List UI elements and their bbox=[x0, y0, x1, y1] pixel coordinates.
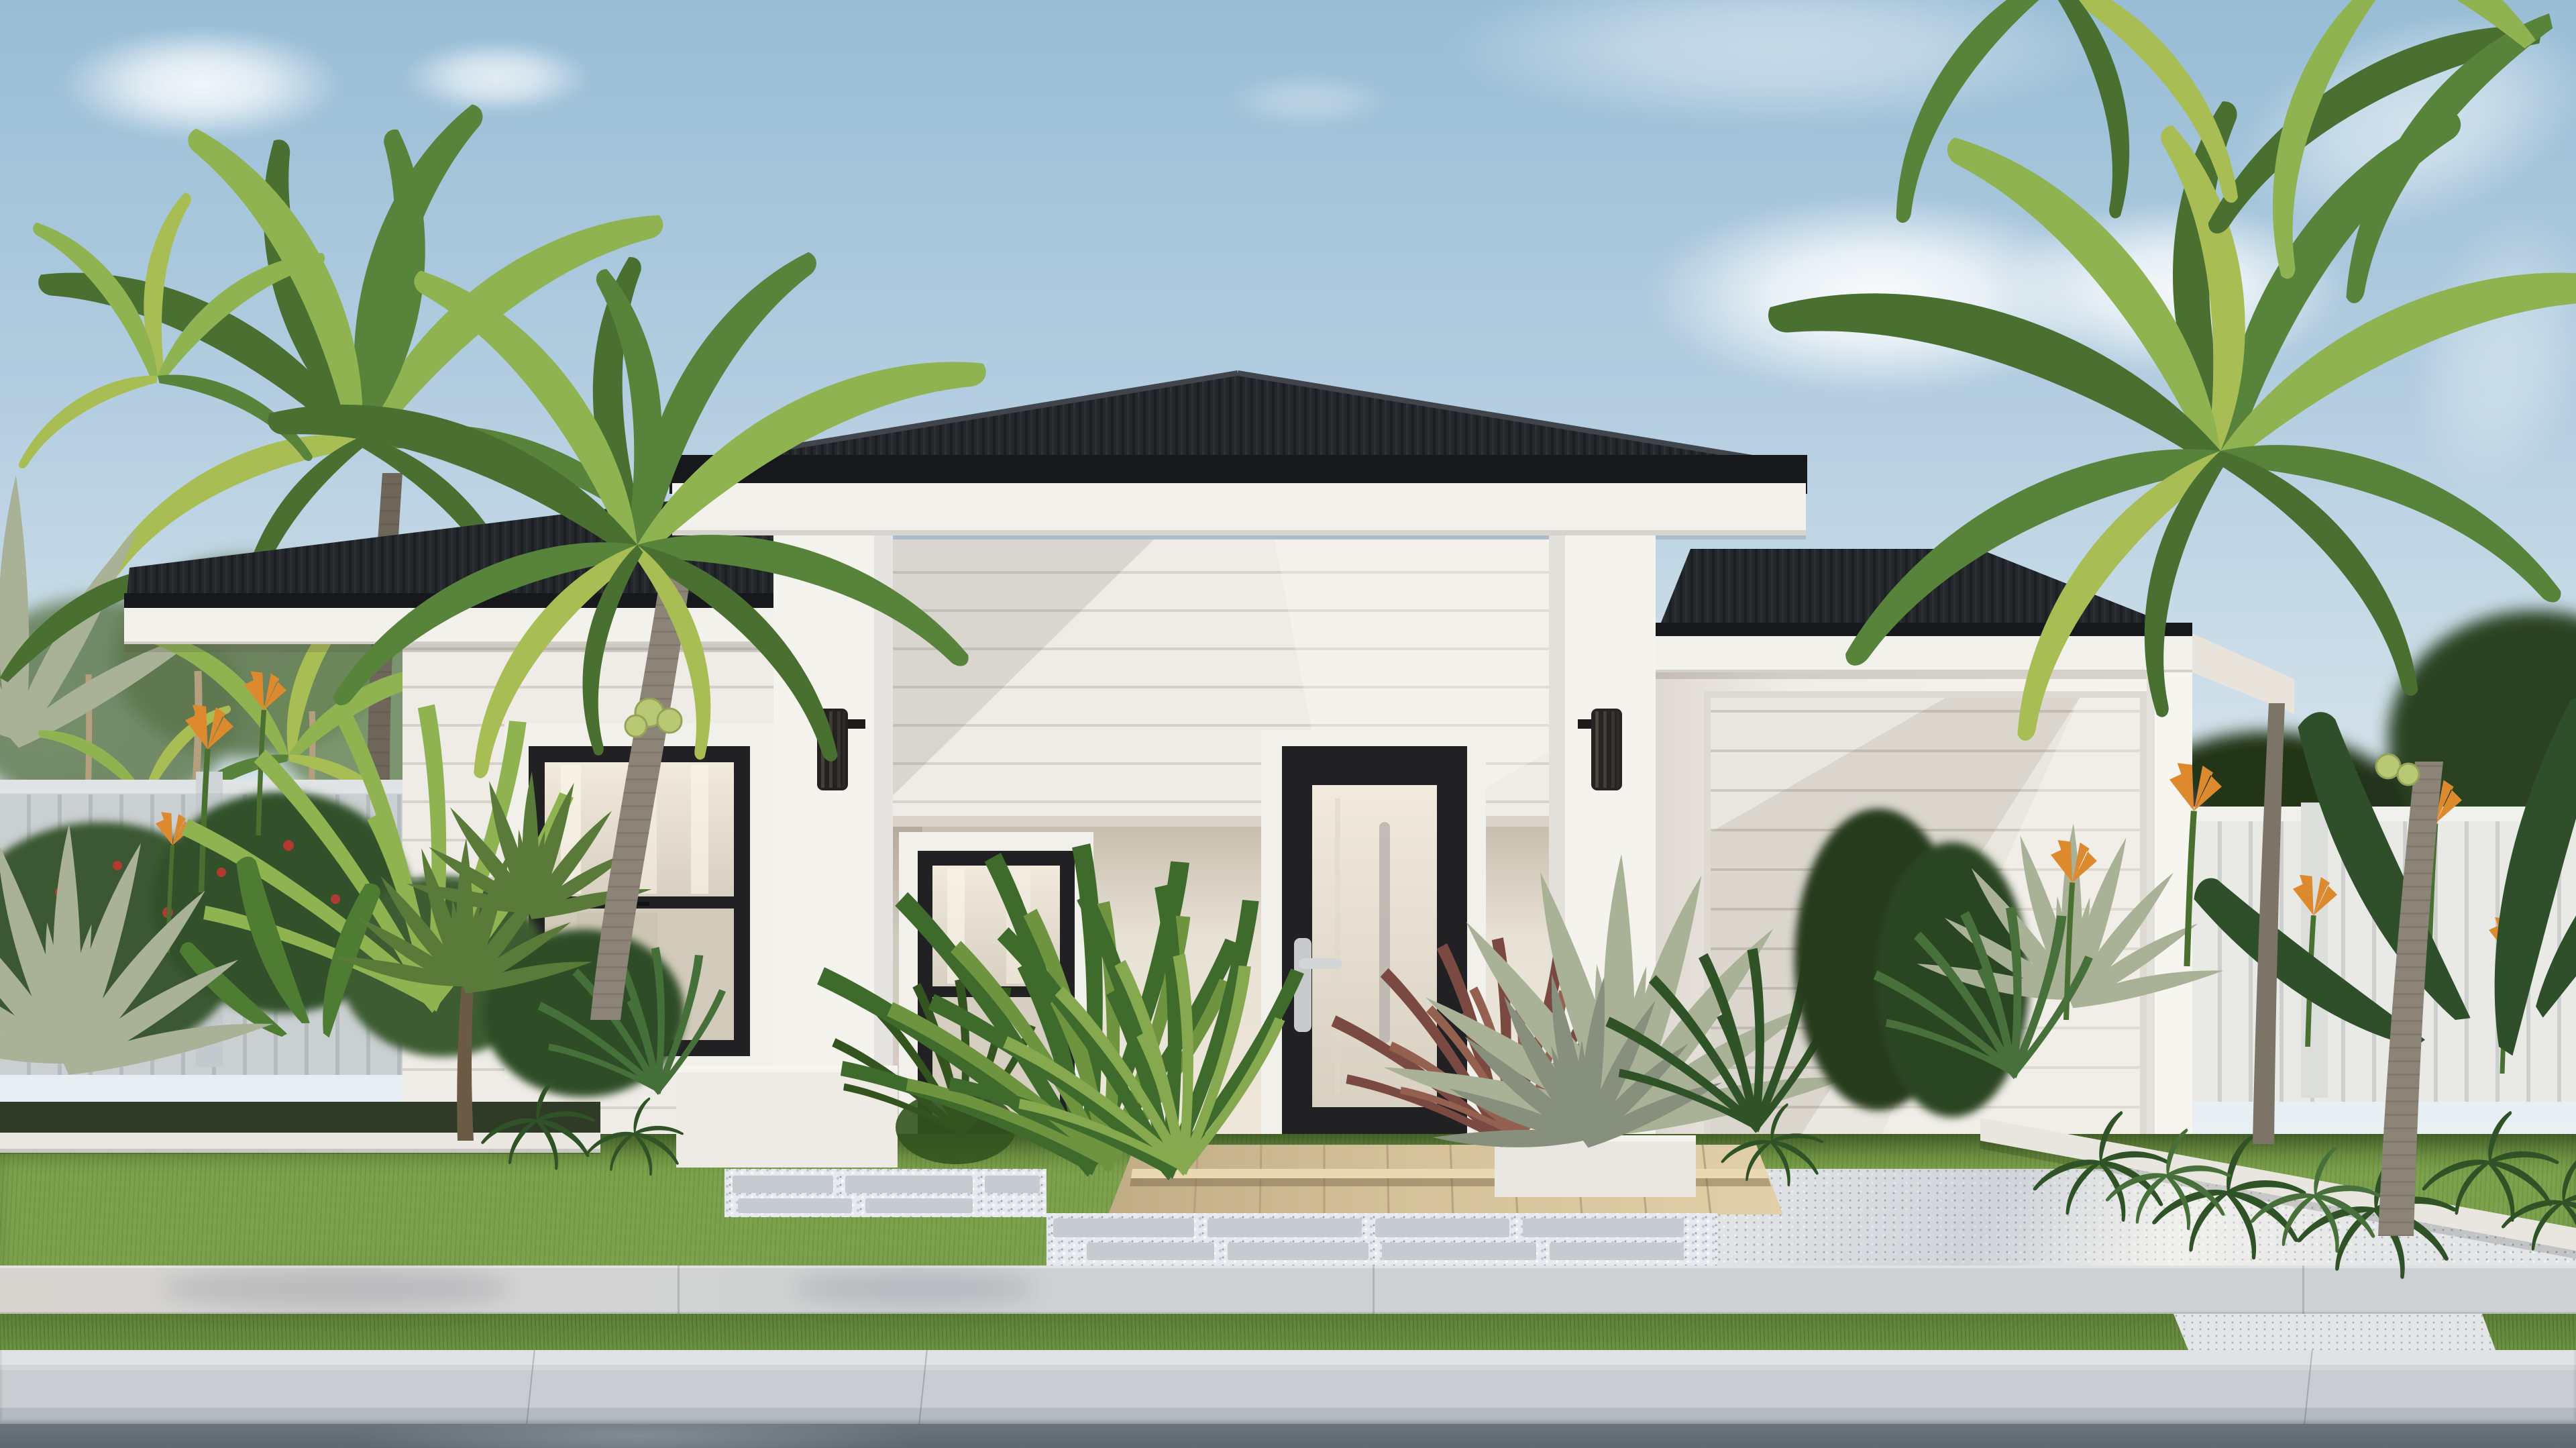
coconuts bbox=[2376, 754, 2419, 785]
palm-crown bbox=[1758, 94, 2576, 744]
foreground-layers bbox=[0, 0, 2576, 1448]
palm-crown bbox=[256, 238, 1009, 780]
right-garden-bed bbox=[1794, 689, 2576, 1280]
exterior-render-scene bbox=[0, 0, 2576, 1448]
